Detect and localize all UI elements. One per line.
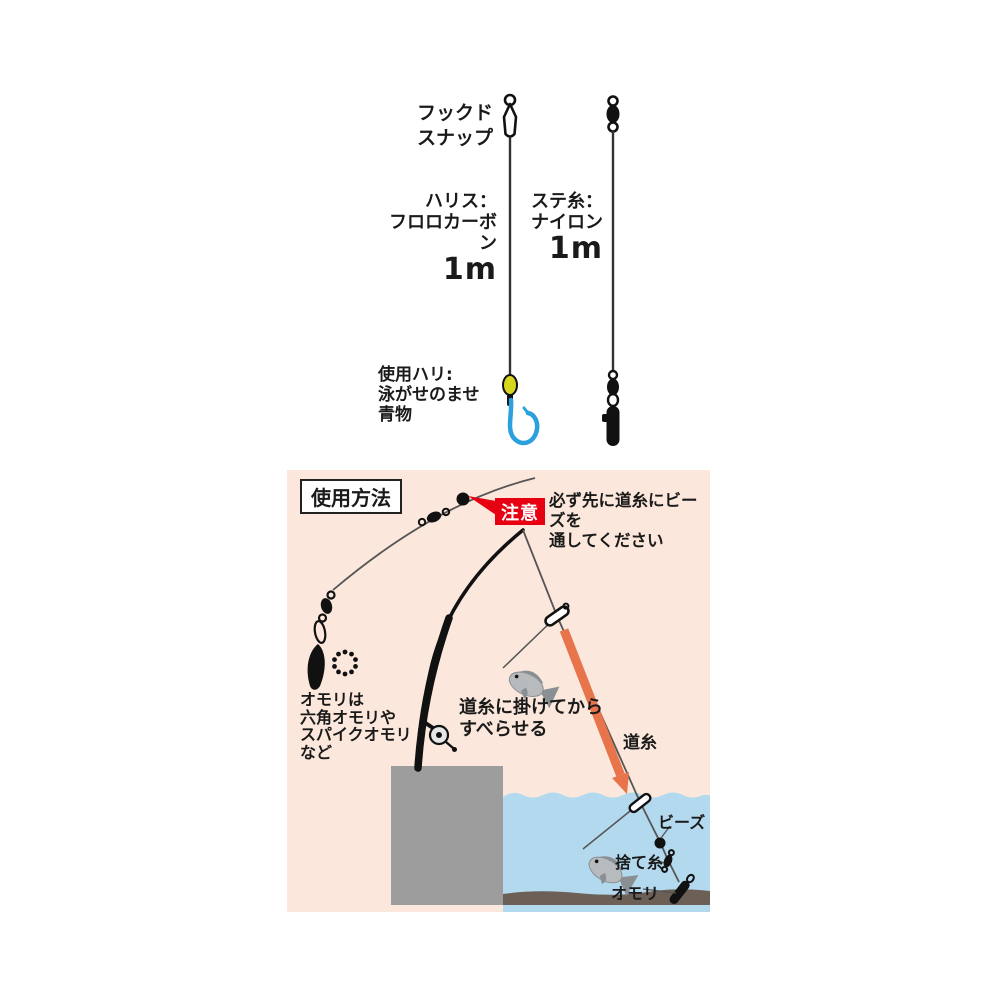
rig-lines-art bbox=[0, 0, 1000, 470]
pier-block bbox=[391, 766, 503, 905]
hooked-snap-label-line1: フックド bbox=[398, 101, 493, 126]
caution-text: 必ず先に道糸にビーズを 通してください bbox=[549, 491, 710, 551]
weight-note: オモリは 六角オモリや スパイクオモリ など bbox=[300, 691, 412, 761]
caution-badge: 注意 bbox=[495, 498, 545, 525]
usage-title: 使用方法 bbox=[300, 479, 402, 514]
slide-note: 道糸に掛けてから すべらせる bbox=[459, 697, 603, 741]
hook-type-line1: 使用ハリ: bbox=[378, 365, 480, 385]
weight-note-line3: スパイクオモリ bbox=[300, 726, 412, 744]
weight-chain-icon bbox=[308, 592, 335, 690]
caution-text-line2: 通してください bbox=[549, 531, 710, 551]
usage-panel: 使用方法 注意 必ず先に道糸にビーズを 通してください オモリは 六角オモリや … bbox=[287, 470, 710, 912]
leader-label: ハリス： フロロカーボン 1m bbox=[372, 191, 497, 286]
swivel-snap-icon bbox=[602, 371, 620, 446]
stopper-bead-icon bbox=[655, 838, 666, 849]
hook-type-line2: 泳がせのませ bbox=[378, 385, 480, 405]
arc-swivel-icon bbox=[417, 506, 451, 528]
hooked-snap-label-line2: スナップ bbox=[398, 126, 493, 151]
weight-water-label: オモリ bbox=[611, 880, 659, 904]
reel-icon bbox=[424, 722, 457, 752]
weight-note-line1: オモリは bbox=[300, 691, 412, 709]
snap-icon bbox=[543, 603, 572, 628]
leader-length: 1m bbox=[372, 254, 497, 286]
caution-pointer bbox=[468, 496, 496, 515]
beads-ring-icon bbox=[332, 650, 358, 677]
arc-bead-icon bbox=[457, 493, 470, 506]
hook-type-label: 使用ハリ: 泳がせのませ 青物 bbox=[378, 365, 480, 425]
sacrifice-length: 1m bbox=[512, 233, 603, 265]
caution-text-line1: 必ず先に道糸にビーズを bbox=[549, 491, 710, 531]
beads-label: ビーズ bbox=[658, 809, 705, 833]
leader-label-line1: ハリス： bbox=[372, 191, 497, 212]
sacrifice-label-line2: ナイロン bbox=[512, 212, 603, 233]
hooked-snap-label: フックド スナップ bbox=[398, 101, 493, 151]
hook-type-line3: 青物 bbox=[378, 405, 480, 425]
leader-label-line2: フロロカーボン bbox=[372, 212, 497, 254]
sacrifice-line-label: ステ糸： ナイロン 1m bbox=[512, 191, 603, 265]
hook-icon bbox=[503, 375, 537, 443]
weight-note-line2: 六角オモリや bbox=[300, 709, 412, 727]
weight-note-line4: など bbox=[300, 744, 412, 762]
sacrifice-label-line1: ステ糸： bbox=[512, 191, 603, 212]
slide-note-line2: すべらせる bbox=[459, 719, 603, 741]
hooked-snap-icon bbox=[504, 95, 516, 137]
slide-note-line1: 道糸に掛けてから bbox=[459, 697, 603, 719]
barrel-swivel-icon bbox=[607, 97, 620, 132]
sacrifice-line-water-label: 捨て糸 bbox=[615, 849, 663, 873]
product-diagram: フックド スナップ ハリス： フロロカーボン 1m ステ糸： ナイロン 1m 使… bbox=[0, 0, 1000, 1000]
main-line-label: 道糸 bbox=[623, 728, 657, 753]
